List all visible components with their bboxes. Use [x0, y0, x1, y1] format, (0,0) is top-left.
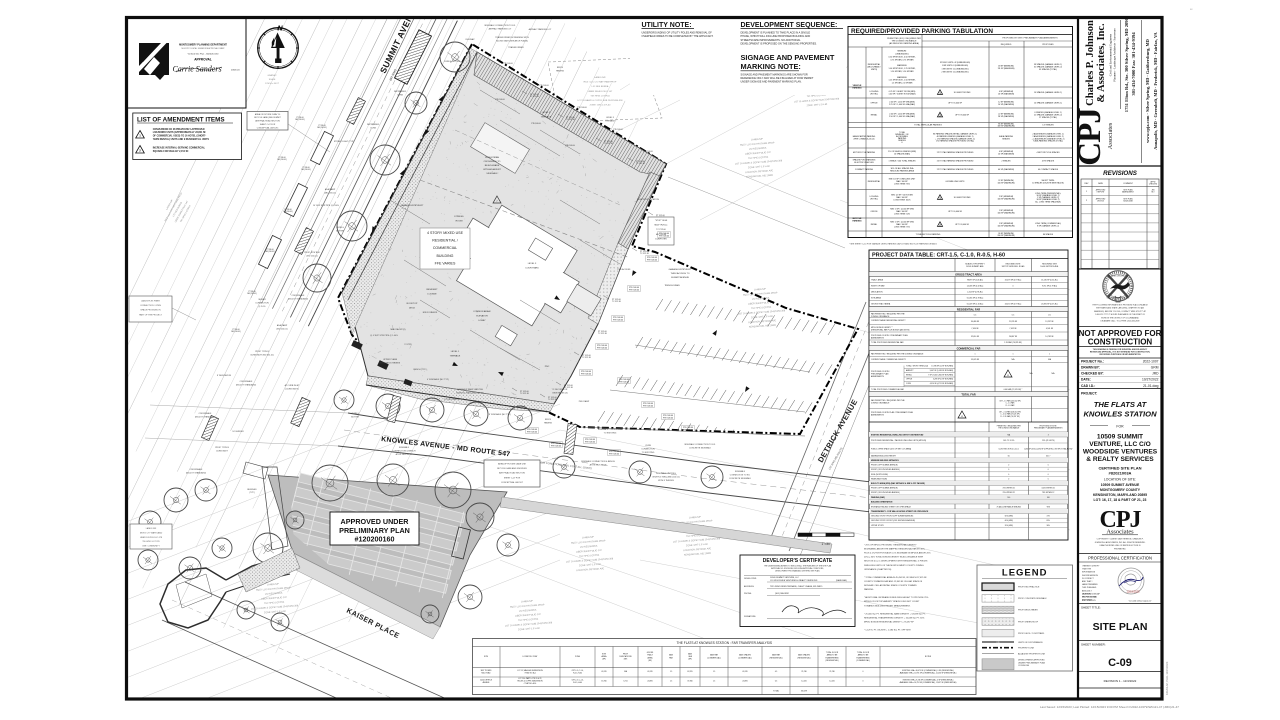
svg-text:OVERHEAD WIRES TO BE COMPLETED: OVERHEAD WIRES TO BE COMPLETED BY THE AP… [642, 35, 714, 38]
svg-text:STUDIO UNITS: 42 (UNBUNDLED): STUDIO UNITS: 42 (UNBUNDLED) [940, 62, 970, 64]
svg-text:STREET LIGHT (TYP.): STREET LIGHT (TYP.) [334, 141, 355, 143]
svg-text:32,616 SF: 32,616 SF [971, 336, 980, 338]
svg-text:LOCATION OF SITE:: LOCATION OF SITE: [1104, 478, 1136, 482]
svg-text:PAVERS: PAVERS [556, 70, 564, 73]
svg-text:PROPOSED BY SITE / PRELIMINARY: PROPOSED BY SITE / PRELIMINARY PLAN AMEN… [1002, 37, 1058, 40]
svg-text:JASON R. DUNLAP: JASON R. DUNLAP [1082, 593, 1101, 596]
svg-text:TC 512.30: TC 512.30 [636, 163, 645, 165]
svg-text:TOWARDS BUILDING HEIGHT MEASUR: TOWARDS BUILDING HEIGHT MEASUREMENT. [864, 604, 911, 607]
svg-text:DWELLING UNITS OF THE MONTGOME: DWELLING UNITS OF THE MONTGOMERY COUNTY … [864, 565, 924, 567]
svg-text:THIS DRAWING IS PENDING FOR MU: THIS DRAWING IS PENDING FOR MUNICIPAL AN… [1093, 348, 1148, 351]
svg-text:SIDEWALK VARYING: SIDEWALK VARYING [656, 472, 676, 475]
svg-text:2 BR UNITS: 11 (UNBUNDLED): 2 BR UNITS: 11 (UNBUNDLED) [942, 71, 969, 73]
svg-text:AREA TO BE: AREA TO BE [858, 654, 869, 657]
svg-text:100% WITHIN 15': 100% WITHIN 15' [1042, 488, 1056, 490]
svg-text:TC P12.00: TC P12.00 [656, 229, 666, 231]
svg-text:DATE: DATE [1098, 182, 1104, 185]
svg-text:C/O WOODSIDE VENTURES & REALTY: C/O WOODSIDE VENTURES & REALTY SERVICES [770, 579, 818, 582]
svg-text:GRAPHIC: GRAPHIC [267, 74, 277, 77]
svg-text:1.00 SP / GUEST ROOM (MAX): 1.00 SP / GUEST ROOM (MAX) [888, 92, 915, 95]
svg-text:64 DWELLING UNITS: 64 DWELLING UNITS [946, 181, 965, 183]
svg-text:* TOTAL COMMERCIAL AREA IS 45,: * TOTAL COMMERCIAL AREA IS 45,434 SF, OF… [864, 576, 927, 579]
svg-text:THE FLATS AT KNOWLES STATION :: THE FLATS AT KNOWLES STATION : FAR TRANS… [677, 641, 772, 645]
svg-text:(MCDOT STANDARD): (MCDOT STANDARD) [195, 416, 215, 419]
svg-text:1.5 SP/2BR, 2.0 SP/3BR: 1.5 SP/2BR, 2.0 SP/3BR [892, 83, 913, 85]
svg-text:RESIDENTIAL TRANSFERRED DENSIT: RESIDENTIAL TRANSFERRED DENSITY + 16,038… [864, 616, 924, 619]
svg-text:COMMERCIAL: COMMERCIAL [433, 246, 457, 250]
svg-text:4,501 SF: 4,501 SF [1046, 328, 1054, 330]
svg-text:AVAILABLE GFA = 16,718 SF (COM: AVAILABLE GFA = 16,718 SF (COMMERCIAL), … [900, 681, 957, 684]
svg-text:1-800-257-7777 72 HOURS IN ADV: 1-800-257-7777 72 HOURS IN ADVANCE OF TH… [1095, 313, 1146, 316]
svg-text:16,760: 16,760 [601, 681, 606, 683]
svg-text:INFORMATION: INFORMATION [1082, 571, 1096, 574]
svg-text:21,235 SF: 21,235 SF [1009, 321, 1018, 323]
svg-text:CROSSWALK: CROSSWALK [199, 412, 212, 415]
svg-text:AT EX. BUS STOP: AT EX. BUS STOP [396, 453, 413, 456]
svg-text:Charles P. Johnson: Charles P. Johnson [1085, 20, 1096, 106]
svg-text:0: 0 [1048, 478, 1049, 480]
svg-text:MOTORCYCLE PARKING: MOTORCYCLE PARKING [853, 151, 876, 154]
svg-text:REAR (EAST SIDE): REAR (EAST SIDE) [871, 477, 887, 480]
svg-text:(MD 110.01): (MD 110.01) [277, 329, 288, 331]
svg-text:UNAUTHORIZED USE OR REPRODUCTI: UNAUTHORIZED USE OR REPRODUCTION IS [1100, 544, 1142, 547]
svg-text:LEVEL 3: LEVEL 3 [606, 117, 615, 119]
svg-text:PTE 503.00: PTE 503.00 [581, 373, 591, 375]
svg-text:APPROVAL NO. 82021003B, INCL: APPROVAL NO. 82021003B, INCLUDING APPROV… [771, 567, 824, 570]
svg-text:EXP. 5/10/2025: EXP. 5/10/2025 [1082, 600, 1097, 602]
svg-text:& REALTY SERVICES: & REALTY SERVICES [1086, 456, 1154, 463]
svg-text:0.5: 0.5 [974, 315, 977, 317]
svg-text:TOTAL PROPOSED RESIDENTIAL FAR: TOTAL PROPOSED RESIDENTIAL FAR [871, 341, 904, 344]
svg-text:30,480 SF: 30,480 SF [971, 321, 980, 323]
svg-text:RESIDENT: RESIDENT [426, 289, 438, 291]
svg-text:/ PLAT NO. A-6: / PLAT NO. A-6 [524, 671, 536, 674]
svg-text:4' SIDEWALK (MC TYP.): 4' SIDEWALK (MC TYP.) [427, 378, 449, 381]
svg-text:UNITS): UNITS) [871, 69, 878, 71]
svg-text:CURB & GUTTER: CURB & GUTTER [444, 61, 461, 63]
svg-text:LOT 16 HAWK & COPSY SUB 25437/: LOT 16 HAWK & COPSY SUB 25437/460-358 [577, 99, 623, 102]
svg-text:63,705: 63,705 [687, 671, 692, 673]
svg-text:SLDNG GATE (SEE ARCH PLANS): SLDNG GATE (SEE ARCH PLANS) [496, 40, 528, 43]
svg-text:TO EXISTING: TO EXISTING [642, 452, 655, 454]
svg-text:TERM RENTAL) UNITS AND 9 RESID: TERM RENTAL) UNITS AND 9 RESIDENTIAL UNI… [153, 138, 210, 141]
svg-text:C-09: C-09 [1108, 657, 1132, 669]
svg-text:LIMITS OF DISTURBANCE: LIMITS OF DISTURBANCE [1018, 641, 1043, 644]
svg-text:R-0.5, H-60: R-0.5, H-60 [573, 672, 582, 674]
svg-text:UTILITY NOTE:: UTILITY NOTE: [642, 22, 692, 29]
svg-text:DEVELOPMENT PROGRAM AND CERTIF: DEVELOPMENT PROGRAM AND CERTIFIED SITE P… [775, 570, 820, 573]
svg-text:6,711: 6,711 [623, 681, 627, 683]
svg-text:2.50 SP / 1,000 SF GFA (MAX): 2.50 SP / 1,000 SF GFA (MAX) [889, 115, 915, 118]
svg-text:DUMPSTER LOCATION: DUMPSTER LOCATION [637, 198, 659, 201]
svg-text:AMENDMENTS: AMENDMENTS [871, 375, 885, 378]
svg-text:(RESIDENTIAL): (RESIDENTIAL) [770, 656, 783, 659]
svg-text:10509 SUMMIT: 10509 SUMMIT [1097, 434, 1143, 441]
svg-text:WITH 8' INSIDES: WITH 8' INSIDES [658, 480, 674, 482]
svg-text:SIDEWALK CONNECTION TO EX.: SIDEWALK CONNECTION TO EX. [484, 24, 516, 27]
svg-text:MAD RACKS (2): MAD RACKS (2) [391, 328, 406, 331]
svg-text:PTE 503.00: PTE 503.00 [577, 107, 587, 109]
svg-text:60.5 *: 60.5 * [1046, 455, 1051, 457]
svg-text:REVIEW AND APPROVAL. IT IS NO: REVIEW AND APPROVAL. IT IS NOT INTENDED … [1090, 351, 1151, 354]
svg-text:MD PLE #19338: MD PLE #19338 [1082, 597, 1098, 599]
svg-text:THE ZONING ORDINANCE: THE ZONING ORDINANCE [998, 427, 1020, 430]
svg-text:SQUARE FOOTAGE BY 2,154 SF: SQUARE FOOTAGE BY 2,154 SF [153, 150, 189, 153]
svg-text:PTE 503.00: PTE 503.00 [539, 85, 549, 87]
svg-text:ORDINANCE (CHAPTER 59).: ORDINANCE (CHAPTER 59). [864, 568, 892, 571]
svg-text:UNDERGROUNDING OF UTILITY POLE: UNDERGROUNDING OF UTILITY POLES AND REMO… [642, 32, 713, 35]
svg-text:TM: HP43 LOT 229: TM: HP43 LOT 229 [142, 541, 160, 543]
svg-text:COMMENT: COMMENT [1123, 183, 1134, 185]
svg-text:10509 SUMMIT VENTURE, LLC: 10509 SUMMIT VENTURE, LLC [770, 577, 799, 579]
svg-text:26,887 SF: 26,887 SF [1009, 336, 1018, 338]
svg-text:GROSS TRACT AREA: GROSS TRACT AREA [871, 303, 891, 306]
svg-text:16 SP (MAXIMUM): 16 SP (MAXIMUM) [998, 92, 1014, 95]
svg-text:AMENITY: AMENITY [906, 369, 914, 372]
svg-text:CURB: CURB [370, 128, 376, 130]
svg-text:WOODSIDE VENTURES: WOODSIDE VENTURES [1083, 449, 1158, 456]
svg-text:FRONT (OFF SUMMIT AVENUE): FRONT (OFF SUMMIT AVENUE) [871, 487, 898, 490]
svg-text:(PER COMAR 05-13.04): (PER COMAR 05-13.04) [854, 137, 875, 140]
svg-text:R-0.5, H-60: R-0.5, H-60 [573, 682, 582, 684]
svg-text:PROP. TYPE B: PROP. TYPE B [255, 351, 269, 353]
svg-text:CONNECTION & BENCH: CONNECTION & BENCH [393, 451, 416, 453]
svg-text:#120200160: #120200160 [355, 535, 395, 544]
svg-text:MD(110.01): MD(110.01) [265, 251, 275, 253]
svg-text:25,881 SF (0.57 AC): 25,881 SF (0.57 AC) [1041, 303, 1058, 306]
svg-text:9' STPS: 9' STPS [404, 344, 412, 346]
svg-text:MAX GFA (SF): MAX GFA (SF) [739, 654, 751, 657]
svg-text:301-434-7000 Fax: 301-4: 301-434-7000 Fax: 301-434-9394 [1131, 32, 1136, 96]
svg-text:SPACES: SPACES [1002, 137, 1010, 140]
svg-text:DEVELOPER:: DEVELOPER: [744, 578, 757, 580]
svg-text:"not valid without signatur: "not valid without signature" [1128, 600, 1152, 603]
svg-text:0.50 SP/STUDIO, 0.50 SP/1BR,: 0.50 SP/STUDIO, 0.50 SP/1BR, [889, 56, 916, 58]
svg-text:HAVE PREPARED: HAVE PREPARED [1082, 583, 1098, 586]
svg-text:2022-1007: 2022-1007 [1143, 359, 1159, 363]
svg-text:TC 512.30: TC 512.30 [548, 399, 557, 401]
svg-text:PARKING.: PARKING. [864, 588, 874, 591]
svg-text:36%: 36% [1047, 525, 1051, 527]
svg-text:TOTAL FLOOR: TOTAL FLOOR [857, 651, 870, 654]
svg-text:169 SP (MAXIMUM): 169 SP (MAXIMUM) [997, 124, 1014, 127]
svg-text:BENCHES: BENCHES [247, 489, 257, 491]
svg-text:25% (21 UNITS): 25% (21 UNITS) [1042, 440, 1055, 442]
svg-text:Associates: Associates [1107, 122, 1114, 149]
svg-text:24,881: 24,881 [742, 681, 747, 683]
svg-text:86 SPACES: 86 SPACES [1043, 233, 1054, 236]
svg-text:CONCEPTUAL LAYOUT): CONCEPTUAL LAYOUT) [257, 126, 279, 129]
svg-text:/ REPORT: / REPORT [1097, 192, 1105, 194]
svg-text:(CURB INLET): (CURB INLET) [285, 389, 299, 391]
svg-text:Annapolis, MD - Greenbelt, MD: Annapolis, MD - Greenbelt, MD - Frederic… [1153, 31, 1158, 149]
svg-text:PTE 503.00: PTE 503.00 [613, 319, 623, 321]
svg-text:BICYCLE LANE AND KNOWLES: BICYCLE LANE AND KNOWLES [497, 467, 527, 470]
svg-text:TRACT: TRACT [647, 654, 654, 657]
svg-text:CHECKED BY:: CHECKED BY: [1081, 372, 1104, 376]
svg-text:10' BUFFER: 10' BUFFER [232, 431, 244, 433]
svg-text:SHEET C-07 FOR: SHEET C-07 FOR [504, 477, 521, 479]
svg-text:(MCDOT STANDARD): (MCDOT STANDARD) [288, 298, 308, 301]
svg-text:AREA: AREA [602, 655, 608, 658]
svg-text:10 SP (MAXIMUM): 10 SP (MAXIMUM) [998, 152, 1014, 155]
svg-text:PED ACCESS: PED ACCESS [618, 268, 631, 271]
svg-text:PUBLIC OPEN SPACE (10% OF NET: PUBLIC OPEN SPACE (10% OF NET LOT AREA) [871, 448, 912, 451]
svg-text:DELAWARE CALL: TOLL FREE 1-80: DELAWARE CALL: TOLL FREE 1-800-632-4949 [1101, 320, 1140, 323]
svg-text:OFFICE: OFFICE [871, 211, 879, 213]
svg-text:TOTAL BICYCLE PARKING: TOTAL BICYCLE PARKING [916, 233, 941, 236]
svg-text:RETAIL: RETAIL [871, 114, 877, 117]
svg-text:RETAIL: RETAIL [871, 223, 877, 226]
svg-text:LONG TERM: 75%: LONG TERM: 75% [894, 227, 910, 229]
svg-text:TC 512.30: TC 512.30 [530, 96, 539, 98]
svg-text:MAXIMUM:: MAXIMUM: [897, 64, 907, 67]
svg-text:SHEET NUMBER:: SHEET NUMBER: [1081, 643, 1106, 647]
svg-text:REQUIRED/PROVIDED PARKING TABU: REQUIRED/PROVIDED PARKING TABULATION [851, 28, 993, 35]
svg-text:* ADDITIONAL INCREASE IN BUILD: * ADDITIONAL INCREASE IN BUILDING HEIGHT… [864, 596, 929, 599]
svg-text:BICYCLE LANE (SEE SUMMIT: BICYCLE LANE (SEE SUMMIT [254, 116, 281, 119]
svg-text:PTE 503.00: PTE 503.00 [643, 151, 653, 153]
svg-text:10' SUP STW PIPE @ 1.00%: 10' SUP STW PIPE @ 1.00% [313, 205, 339, 207]
svg-text:(HOTEL): (HOTEL) [870, 198, 878, 200]
svg-text:172 TOTAL PARKING SPACES PROVI: 172 TOTAL PARKING SPACES PROVIDED [937, 168, 974, 171]
svg-text:PROJECT No.:: PROJECT No.: [1081, 359, 1104, 363]
svg-text:TERRACE: TERRACE [450, 355, 461, 358]
svg-text:LANDS N/F: LANDS N/F [594, 76, 606, 79]
svg-text:CORE: CORE [906, 383, 912, 385]
svg-text:PARKING: PARKING [852, 87, 862, 90]
svg-text:TOTAL / SHORT TERM (212): TOTAL / SHORT TERM (212) [906, 365, 929, 368]
svg-text:APPROVAL: APPROVAL [194, 58, 212, 62]
svg-text:16,130 SF (0.52 AC): 16,130 SF (0.52 AC) [1041, 279, 1058, 282]
svg-text:PROP. DECK / COURTYARD: PROP. DECK / COURTYARD [1018, 632, 1045, 635]
svg-text:LEVEL 3: LEVEL 3 [542, 112, 551, 114]
svg-text:CONSTRUCTION: CONSTRUCTION [1088, 338, 1153, 347]
svg-text:R - 1.39 FAR (76,287 SF): R - 1.39 FAR (76,287 SF) [1000, 415, 1020, 418]
svg-text:ROOFTOP: ROOFTOP [407, 303, 418, 305]
svg-text:#120200160: #120200160 [1018, 665, 1030, 667]
svg-text:60: 60 [1008, 455, 1010, 457]
svg-text:ICA SNAP: ICA SNAP [465, 38, 475, 41]
svg-text:UNDER PRELIMINARY PLAN: UNDER PRELIMINARY PLAN [1018, 661, 1045, 664]
svg-text:PROPOSED RESIDENTIAL / PACKED: PROPOSED RESIDENTIAL / PACKED DWELLING U… [871, 439, 927, 442]
svg-text:69 SPACES (TOTAL): 69 SPACES (TOTAL) [1039, 68, 1057, 71]
svg-text:1.50 SP/2BR, 1.50 SP/3BR: 1.50 SP/2BR, 1.50 SP/3BR [891, 71, 915, 73]
svg-text:SITE PLAN: SITE PLAN [1093, 621, 1148, 633]
svg-text:MONT. CTY MARYLAND: MONT. CTY MARYLAND [140, 531, 163, 534]
svg-text:0.66 FAR (27,625 SF) *: 0.66 FAR (27,625 SF) * [1004, 388, 1023, 391]
svg-text:PROFESSIONAL CERTIFICATION: PROFESSIONAL CERTIFICATION [1088, 556, 1152, 561]
svg-text:TC 512.30: TC 512.30 [640, 253, 649, 255]
svg-text:COPYRIGHT © LATEST DATE HEREON: COPYRIGHT © LATEST DATE HEREON, CHARLES … [1097, 538, 1144, 541]
svg-text:13,237 SF: 13,237 SF [1045, 321, 1054, 323]
svg-text:GARAGE ENTRY/EXIT: GARAGE ENTRY/EXIT [669, 268, 692, 271]
svg-text:AMENDMENTS: AMENDMENTS [871, 336, 885, 339]
svg-text:SITE AREA: SITE AREA [871, 297, 882, 300]
svg-text:0: 0 [1008, 465, 1009, 467]
svg-text:AVE FINAL ROAD SECTION: AVE FINAL ROAD SECTION [499, 472, 525, 475]
svg-text:(MCDOT STANDARD): (MCDOT STANDARD) [186, 472, 206, 475]
svg-text:1.39 FAR (76,285 SF): 1.39 FAR (76,285 SF) [1004, 341, 1022, 344]
svg-text:AMENDED). BEFORE YOU DIG, CON: AMENDED). BEFORE YOU DIG, CONTACT "MISS … [1094, 310, 1146, 313]
svg-text:PTE 503.00: PTE 503.00 [647, 259, 657, 261]
svg-text:10 SPACES (ON-SITE BIKE RACKS): 10 SPACES (ON-SITE BIKE RACKS) [1032, 181, 1064, 184]
svg-text:3: 3 [1048, 434, 1049, 436]
svg-text:0: 0 [863, 681, 864, 683]
svg-text:32,479 SF (0.97 AC): 32,479 SF (0.97 AC) [1005, 279, 1022, 282]
svg-text:TOTAL FAR: TOTAL FAR [961, 393, 975, 397]
svg-text:TC 512.30: TC 512.30 [582, 357, 591, 359]
svg-text:1 BR UNITS: 11 (UNBUNDLED): 1 BR UNITS: 11 (UNBUNDLED) [942, 68, 969, 70]
svg-text:1: 1 [1013, 354, 1014, 356]
svg-text:@ 4' NCP STW PIPE @ 1.00%: @ 4' NCP STW PIPE @ 1.00% [370, 335, 398, 337]
svg-text:PTE 503.00: PTE 503.00 [503, 63, 513, 65]
svg-text:PTE 503.00: PTE 503.00 [659, 235, 669, 237]
svg-text:TRENCH DRAIN: TRENCH DRAIN [664, 284, 680, 287]
svg-text:MD(110.01): MD(110.01) [231, 331, 241, 333]
svg-text:0.5: 0.5 [1012, 315, 1015, 317]
svg-text:TRANSFERRED: TRANSFERRED [856, 656, 870, 659]
svg-text:UP TO 6,000 SF: UP TO 6,000 SF [948, 211, 963, 213]
svg-text:PROHIBITED.: PROHIBITED. [1114, 548, 1127, 550]
svg-text:0.5: 0.5 [775, 671, 777, 673]
svg-text:SIGNAGE AND PAVEMENT: SIGNAGE AND PAVEMENT [741, 53, 835, 62]
svg-text:AREA OF FUTURE LANE USE: AREA OF FUTURE LANE USE [498, 463, 526, 466]
svg-text:8' SIDEWALK (MC TYP.): 8' SIDEWALK (MC TYP.) [489, 413, 511, 416]
svg-text:OF COMMERCIAL USES) TO 16 HOTE: OF COMMERCIAL USES) TO 16 HOTEL (SHORT- [153, 135, 207, 138]
svg-text:REVISIONS: REVISIONS [1103, 170, 1138, 177]
svg-text:AREA TO BE: AREA TO BE [827, 654, 838, 657]
svg-text:BE AT-GRADE: BE AT-GRADE [485, 164, 500, 167]
svg-text:2 SPACES: 2 SPACES [1001, 160, 1011, 163]
svg-text:* 1,129 S. FT. ON-SITE + 1,580: * 1,129 S. FT. ON-SITE + 1,580 SQ. FT. O… [864, 630, 911, 632]
svg-text:60% (MIN): 60% (MIN) [1005, 516, 1014, 518]
svg-text:2.25 SP / 1,000 SF GFA (MAX): 2.25 SP / 1,000 SF GFA (MAX) [889, 103, 915, 106]
svg-text:4 STORY MIXED USE: 4 STORY MIXED USE [427, 231, 464, 235]
svg-text:FRONT (OFF KNOWLES AVENUE): FRONT (OFF KNOWLES AVENUE) [871, 491, 900, 494]
svg-text:AVE FINAL ROAD SECTION: AVE FINAL ROAD SECTION [255, 120, 280, 123]
svg-text:(SF): (SF) [648, 660, 652, 662]
svg-text:DEVELOPER'S CERTIFICATE: DEVELOPER'S CERTIFICATE [763, 558, 833, 564]
svg-text:1.5: 1.5 [713, 681, 715, 683]
svg-text:MONTGOMERY COUNTY: MONTGOMERY COUNTY [1100, 488, 1141, 492]
svg-text:(COMMERCIAL): (COMMERCIAL) [707, 656, 721, 659]
svg-text:JRD: JRD [1152, 372, 1159, 376]
svg-text:* SEE SHEET C-10 FOR GARAGE L: * SEE SHEET C-10 FOR GARAGE LEVEL PARKIN… [849, 243, 937, 246]
svg-text:LANDS FLEX FIBER: LANDS FLEX FIBER [141, 300, 160, 303]
svg-text:Last Saved: 12/15/2023; Last: Last Saved: 12/15/2023; Last Plotted: 12… [1040, 705, 1179, 709]
svg-text:(COMMERCIAL): (COMMERCIAL) [856, 659, 870, 662]
svg-text:EXISTING RESIDENTIAL DWELLING: EXISTING RESIDENTIAL DWELLING UNITS TO B… [871, 433, 924, 436]
svg-text:ZONING ORDINANCE: ZONING ORDINANCE [871, 401, 890, 404]
svg-text:AM A DULY: AM A DULY [1082, 589, 1093, 592]
svg-text:JOHNSON & ASSOCIATES, INC. ALL: JOHNSON & ASSOCIATES, INC. ALL RIGHTS RE… [1094, 541, 1145, 544]
svg-text:ZONE: ZONE [575, 656, 581, 658]
svg-text:SIGNAGE AND PAVEMENT MARKINGS: SIGNAGE AND PAVEMENT MARKINGS ARE SHOWN … [741, 73, 808, 76]
svg-text:100 SP (MAXIMUM): 100 SP (MAXIMUM) [997, 181, 1014, 184]
svg-text:OFFICE: OFFICE [906, 379, 913, 381]
svg-text:0: 0 [863, 671, 864, 673]
svg-text:ENTRANCE FACING STREET OR OPEN: ENTRANCE FACING STREET OR OPEN SPACE [871, 505, 912, 508]
svg-text:MINIMUM:: MINIMUM: [897, 51, 907, 53]
svg-text:14 SPACES (GARAGE LEVEL 1): 14 SPACES (GARAGE LEVEL 1) [1034, 102, 1062, 105]
svg-text:7 ADA PARKING SPACES (TOTAL): 7 ADA PARKING SPACES (TOTAL) [1033, 140, 1063, 143]
svg-text:RLT: RLT [1151, 192, 1154, 194]
svg-text:COURTYARD: COURTYARD [525, 267, 539, 270]
svg-text:SIDEWALK CONNECTION: SIDEWALK CONNECTION [598, 428, 623, 431]
svg-text:/ PLAT NO. A-16: / PLAT NO. A-16 [524, 682, 536, 685]
svg-text:PTE 503.00: PTE 503.00 [565, 145, 575, 147]
svg-text:SIDEWALK CONNECTION & BENCH: SIDEWALK CONNECTION & BENCH [581, 460, 615, 463]
svg-text:SPACE PROVIDED IN: SPACE PROVIDED IN [140, 309, 161, 312]
svg-text:THE ZONING ORDINANCE: THE ZONING ORDINANCE [892, 40, 918, 43]
svg-text:RIGHT OF WAY: RIGHT OF WAY [871, 285, 885, 288]
svg-text:1 SPACE / 100 TOTAL SPACES: 1 SPACE / 100 TOTAL SPACES [889, 160, 917, 163]
svg-text:PTE 503.00: PTE 503.00 [531, 123, 541, 125]
svg-text:MARKING NOTE:: MARKING NOTE: [741, 62, 801, 71]
svg-text:(AS REDUCED PARKING AREA): (AS REDUCED PARKING AREA) [889, 42, 919, 45]
svg-text:AMENDMENTS: AMENDMENTS [871, 413, 885, 416]
svg-text:TC 512.30: TC 512.30 [604, 143, 613, 145]
svg-text:3,467 SF (1,098 SF NON-FAR): 3,467 SF (1,098 SF NON-FAR) [930, 369, 954, 372]
svg-text:THAT THE: THAT THE [1082, 568, 1092, 571]
svg-text:1 BR UNITS: 8 (UNBUNDLED): 1 BR UNITS: 8 (UNBUNDLED) [942, 65, 968, 67]
svg-text:100 SP (MAXIMUM): 100 SP (MAXIMUM) [997, 224, 1014, 227]
svg-text:ZONE: CRT-1.5 H-60: ZONE: CRT-1.5 H-60 [590, 105, 612, 107]
svg-text:1.00 SP/STUDIO, 1.25 SP/1BR,: 1.00 SP/STUDIO, 1.25 SP/1BR, [889, 68, 916, 70]
svg-text:DUMPSTER: DUMPSTER [655, 238, 667, 240]
svg-text:TC 512.30: TC 512.30 [520, 393, 529, 395]
svg-text:MD(110.01): MD(110.01) [301, 169, 311, 171]
svg-text:LONG TERM: 100%: LONG TERM: 100% [893, 200, 910, 202]
svg-text:LONG TERM: 95%: LONG TERM: 95% [894, 184, 910, 186]
svg-text:10509 SUMMIT AVE.: 10509 SUMMIT AVE. [966, 265, 984, 268]
svg-text:(5%) = 30% TOTAL BONUS DENSITY: (5%) = 30% TOTAL BONUS DENSITY IN ACCORD… [864, 556, 924, 559]
svg-text:PTE 503.00: PTE 503.00 [619, 381, 629, 383]
svg-text:14,782 SF: 14,782 SF [1045, 336, 1054, 338]
svg-text:DEPRESSED: DEPRESSED [367, 124, 380, 126]
svg-text:PROP. STW B/W: PROP. STW B/W [304, 252, 319, 254]
svg-text:1.25 SP/STUDIO, 1.50 SP/1BR,: 1.25 SP/STUDIO, 1.50 SP/1BR, [889, 80, 916, 82]
svg-text:AVAILABLE GFA = 11,995 SF (COM: AVAILABLE GFA = 11,995 SF (COMMERCIAL), … [900, 671, 957, 674]
svg-text:UPPER PLAZA: UPPER PLAZA [383, 358, 397, 361]
svg-text:WIDTH (5' MIN.) AND (110.01): WIDTH (5' MIN.) AND (110.01) [652, 476, 680, 479]
svg-text:MD(110.01): MD(110.01) [295, 119, 305, 121]
svg-text:SHOWN HEREON: SHOWN HEREON [1082, 575, 1098, 577]
svg-text:"STOP" SIGN: "STOP" SIGN [655, 220, 668, 222]
svg-text:CONVERSION OF 28 PREVIOUSLY-AP: CONVERSION OF 28 PREVIOUSLY-APPROVED [153, 128, 205, 131]
svg-text:PROJECT DATA TABLE: CRT-1.5, C: PROJECT DATA TABLE: CRT-1.5, C-1.0, R-0.… [872, 253, 1005, 259]
svg-text:PNC: PNC [545, 366, 550, 368]
svg-text:SIDEWALK: SIDEWALK [486, 172, 498, 175]
svg-text:64+ LONG TERM SPACES(R): 64+ LONG TERM SPACES(R) [1035, 200, 1061, 203]
svg-text:CONCRETE SIDEWALK: CONCRETE SIDEWALK [689, 447, 712, 450]
svg-text:98097 SF (2.06 AC): 98097 SF (2.06 AC) [967, 279, 983, 282]
svg-text:MPDUS. ROOFTOP AMENITY SPACE: MPDUS. ROOFTOP AMENITY SPACE DOES NOT CO… [864, 600, 920, 603]
svg-text:44 COMPACT SPACES: 44 COMPACT SPACES [1038, 168, 1059, 171]
svg-text:THE UNDERSIGNED AGREES TO EXEC: THE UNDERSIGNED AGREES TO EXECUTE ALL TH… [764, 565, 832, 568]
svg-text:PROP. TYPE B: PROP. TYPE B [215, 447, 229, 449]
svg-text:16 GUEST ROOMS: 16 GUEST ROOMS [954, 92, 972, 94]
svg-text:CONNECTION TO EX.: CONNECTION TO EX. [730, 475, 751, 477]
svg-text:0.5: 0.5 [775, 681, 777, 683]
svg-text:SUMMIT AVENUE: SUMMIT AVENUE [671, 276, 689, 279]
svg-text:ADA RAMP: ADA RAMP [277, 324, 288, 327]
svg-text:THIS PLAN AND: THIS PLAN AND [1082, 586, 1097, 589]
svg-text:TO EXISTING: TO EXISTING [604, 433, 617, 435]
svg-text:STREETSCAPE IMPROVEMENTS. NO A: STREETSCAPE IMPROVEMENTS. NO ADDITIONAL [741, 39, 802, 42]
svg-text:7315 WISCONSIN TERRACE, CHE: 7315 WISCONSIN TERRACE, CHEVY CHASE, MD … [770, 585, 823, 588]
